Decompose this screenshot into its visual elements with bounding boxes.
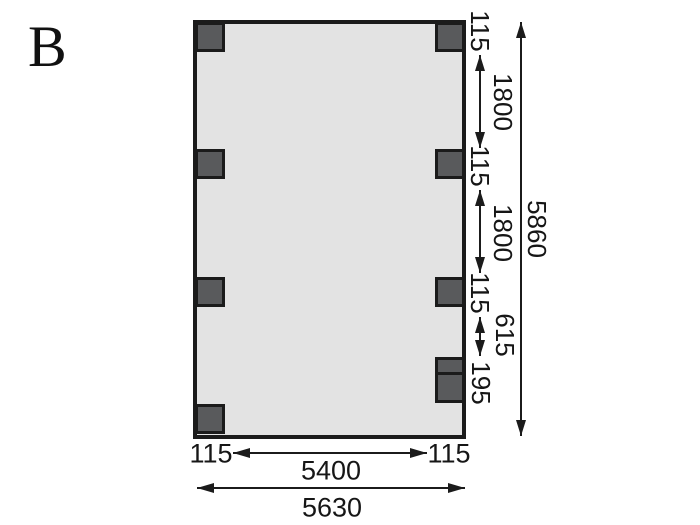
dim-label-615: 615 <box>492 313 518 356</box>
post-right-1 <box>435 22 465 52</box>
dim-label-115-b: 115 <box>467 145 493 186</box>
arrowhead-left-icon <box>233 448 250 458</box>
post-right-3 <box>435 277 465 307</box>
dim-label-195: 195 <box>468 361 494 404</box>
arrowhead-down-icon <box>475 340 485 356</box>
arrowhead-up-icon <box>475 317 485 333</box>
dim-label-5860: 5860 <box>524 200 550 258</box>
dim-label-5630: 5630 <box>302 495 362 522</box>
arrowhead-up-icon <box>475 190 485 206</box>
dim-label-115-right: 115 <box>427 441 470 468</box>
plan-outline <box>193 20 466 439</box>
arrowhead-right-icon <box>410 448 427 458</box>
diagram-canvas: B 115 1800 115 1800 115 615 195 5860 115… <box>0 0 700 525</box>
arrowhead-left-icon <box>197 483 214 493</box>
post-right-double <box>435 357 465 403</box>
post-left-2 <box>195 149 225 179</box>
dim-label-1800-b: 1800 <box>490 204 516 262</box>
post-right-2 <box>435 149 465 179</box>
arrowhead-right-icon <box>448 483 465 493</box>
dim-label-1800-a: 1800 <box>490 73 516 131</box>
dim-label-115-a: 115 <box>467 10 493 51</box>
post-right-double-lower <box>438 375 462 400</box>
dim-label-115-left: 115 <box>189 441 232 468</box>
dim-label-5400: 5400 <box>301 458 361 485</box>
post-left-3 <box>195 277 225 307</box>
post-right-double-upper <box>438 360 462 375</box>
post-left-4 <box>195 404 225 434</box>
figure-label: B <box>28 18 67 76</box>
arrow-shaft-5630 <box>197 487 465 489</box>
post-left-1 <box>195 22 225 52</box>
arrow-shaft-5400 <box>233 452 427 454</box>
dim-label-115-c: 115 <box>467 272 493 313</box>
arrowhead-up-icon <box>516 22 526 38</box>
arrowhead-up-icon <box>475 55 485 71</box>
arrowhead-down-icon <box>475 257 485 273</box>
arrowhead-down-icon <box>516 420 526 436</box>
